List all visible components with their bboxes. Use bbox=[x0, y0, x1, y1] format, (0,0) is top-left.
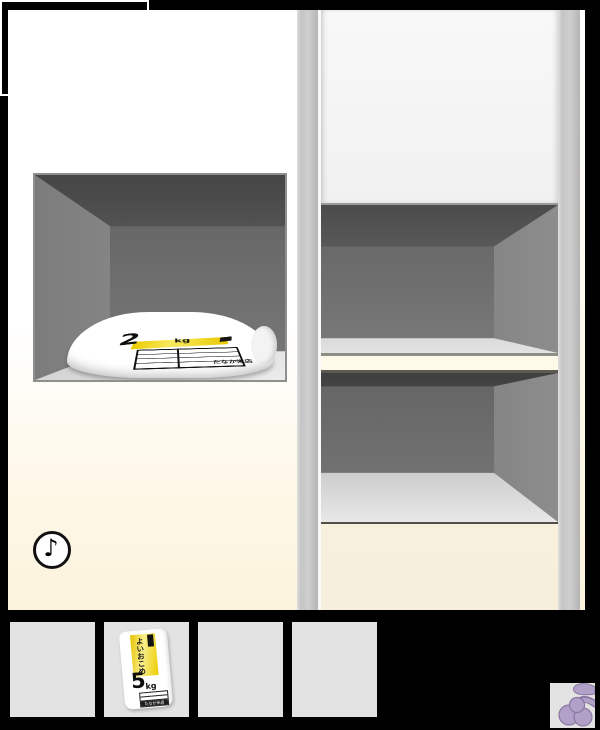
weight-unit: kg bbox=[174, 338, 190, 344]
music-note-icon: ♪ bbox=[43, 536, 58, 560]
grapes-icon bbox=[550, 683, 595, 728]
weight-value: 2 bbox=[119, 331, 142, 348]
shop-name: たなか米店 bbox=[212, 359, 254, 366]
cabinet-left-pillar bbox=[297, 10, 318, 610]
label-ink-mark bbox=[220, 336, 232, 342]
wall-niche[interactable]: 2 kg たなか米店 bbox=[33, 173, 287, 382]
inventory-item-rice-bag[interactable]: よいおこめ 5 kg たなか米店 bbox=[119, 628, 174, 710]
rice-bag-fold bbox=[251, 326, 277, 364]
inventory-slot-4[interactable] bbox=[292, 622, 377, 717]
music-toggle-button[interactable]: ♪ bbox=[33, 531, 71, 569]
right-wall-strip bbox=[580, 10, 585, 610]
cabinet-right-pillar bbox=[558, 10, 580, 610]
label-header-mark bbox=[147, 634, 154, 646]
rice-bag-label: 2 kg たなか米店 bbox=[112, 335, 257, 369]
item-weight-unit: kg bbox=[145, 681, 157, 691]
scene: 2 kg たなか米店 ♪ bbox=[8, 10, 585, 610]
rice-bag-2kg[interactable]: 2 kg たなか米店 bbox=[67, 312, 273, 378]
cabinet-top-door[interactable] bbox=[321, 10, 558, 205]
cabinet-shelf-edge bbox=[321, 353, 558, 373]
cabinet-compartment-upper[interactable] bbox=[321, 205, 558, 353]
item-shop-row: たなか米店 bbox=[141, 699, 168, 706]
game-frame: 2 kg たなか米店 ♪ bbox=[0, 0, 600, 730]
inventory-slot-2[interactable]: よいおこめ 5 kg たなか米店 bbox=[104, 622, 189, 717]
inventory-slot-1[interactable] bbox=[10, 622, 95, 717]
slot-corner-window bbox=[550, 683, 595, 728]
inventory-slot-3[interactable] bbox=[198, 622, 283, 717]
cabinet-compartment-lower[interactable] bbox=[321, 373, 558, 524]
item-label-table: たなか米店 bbox=[139, 690, 169, 707]
